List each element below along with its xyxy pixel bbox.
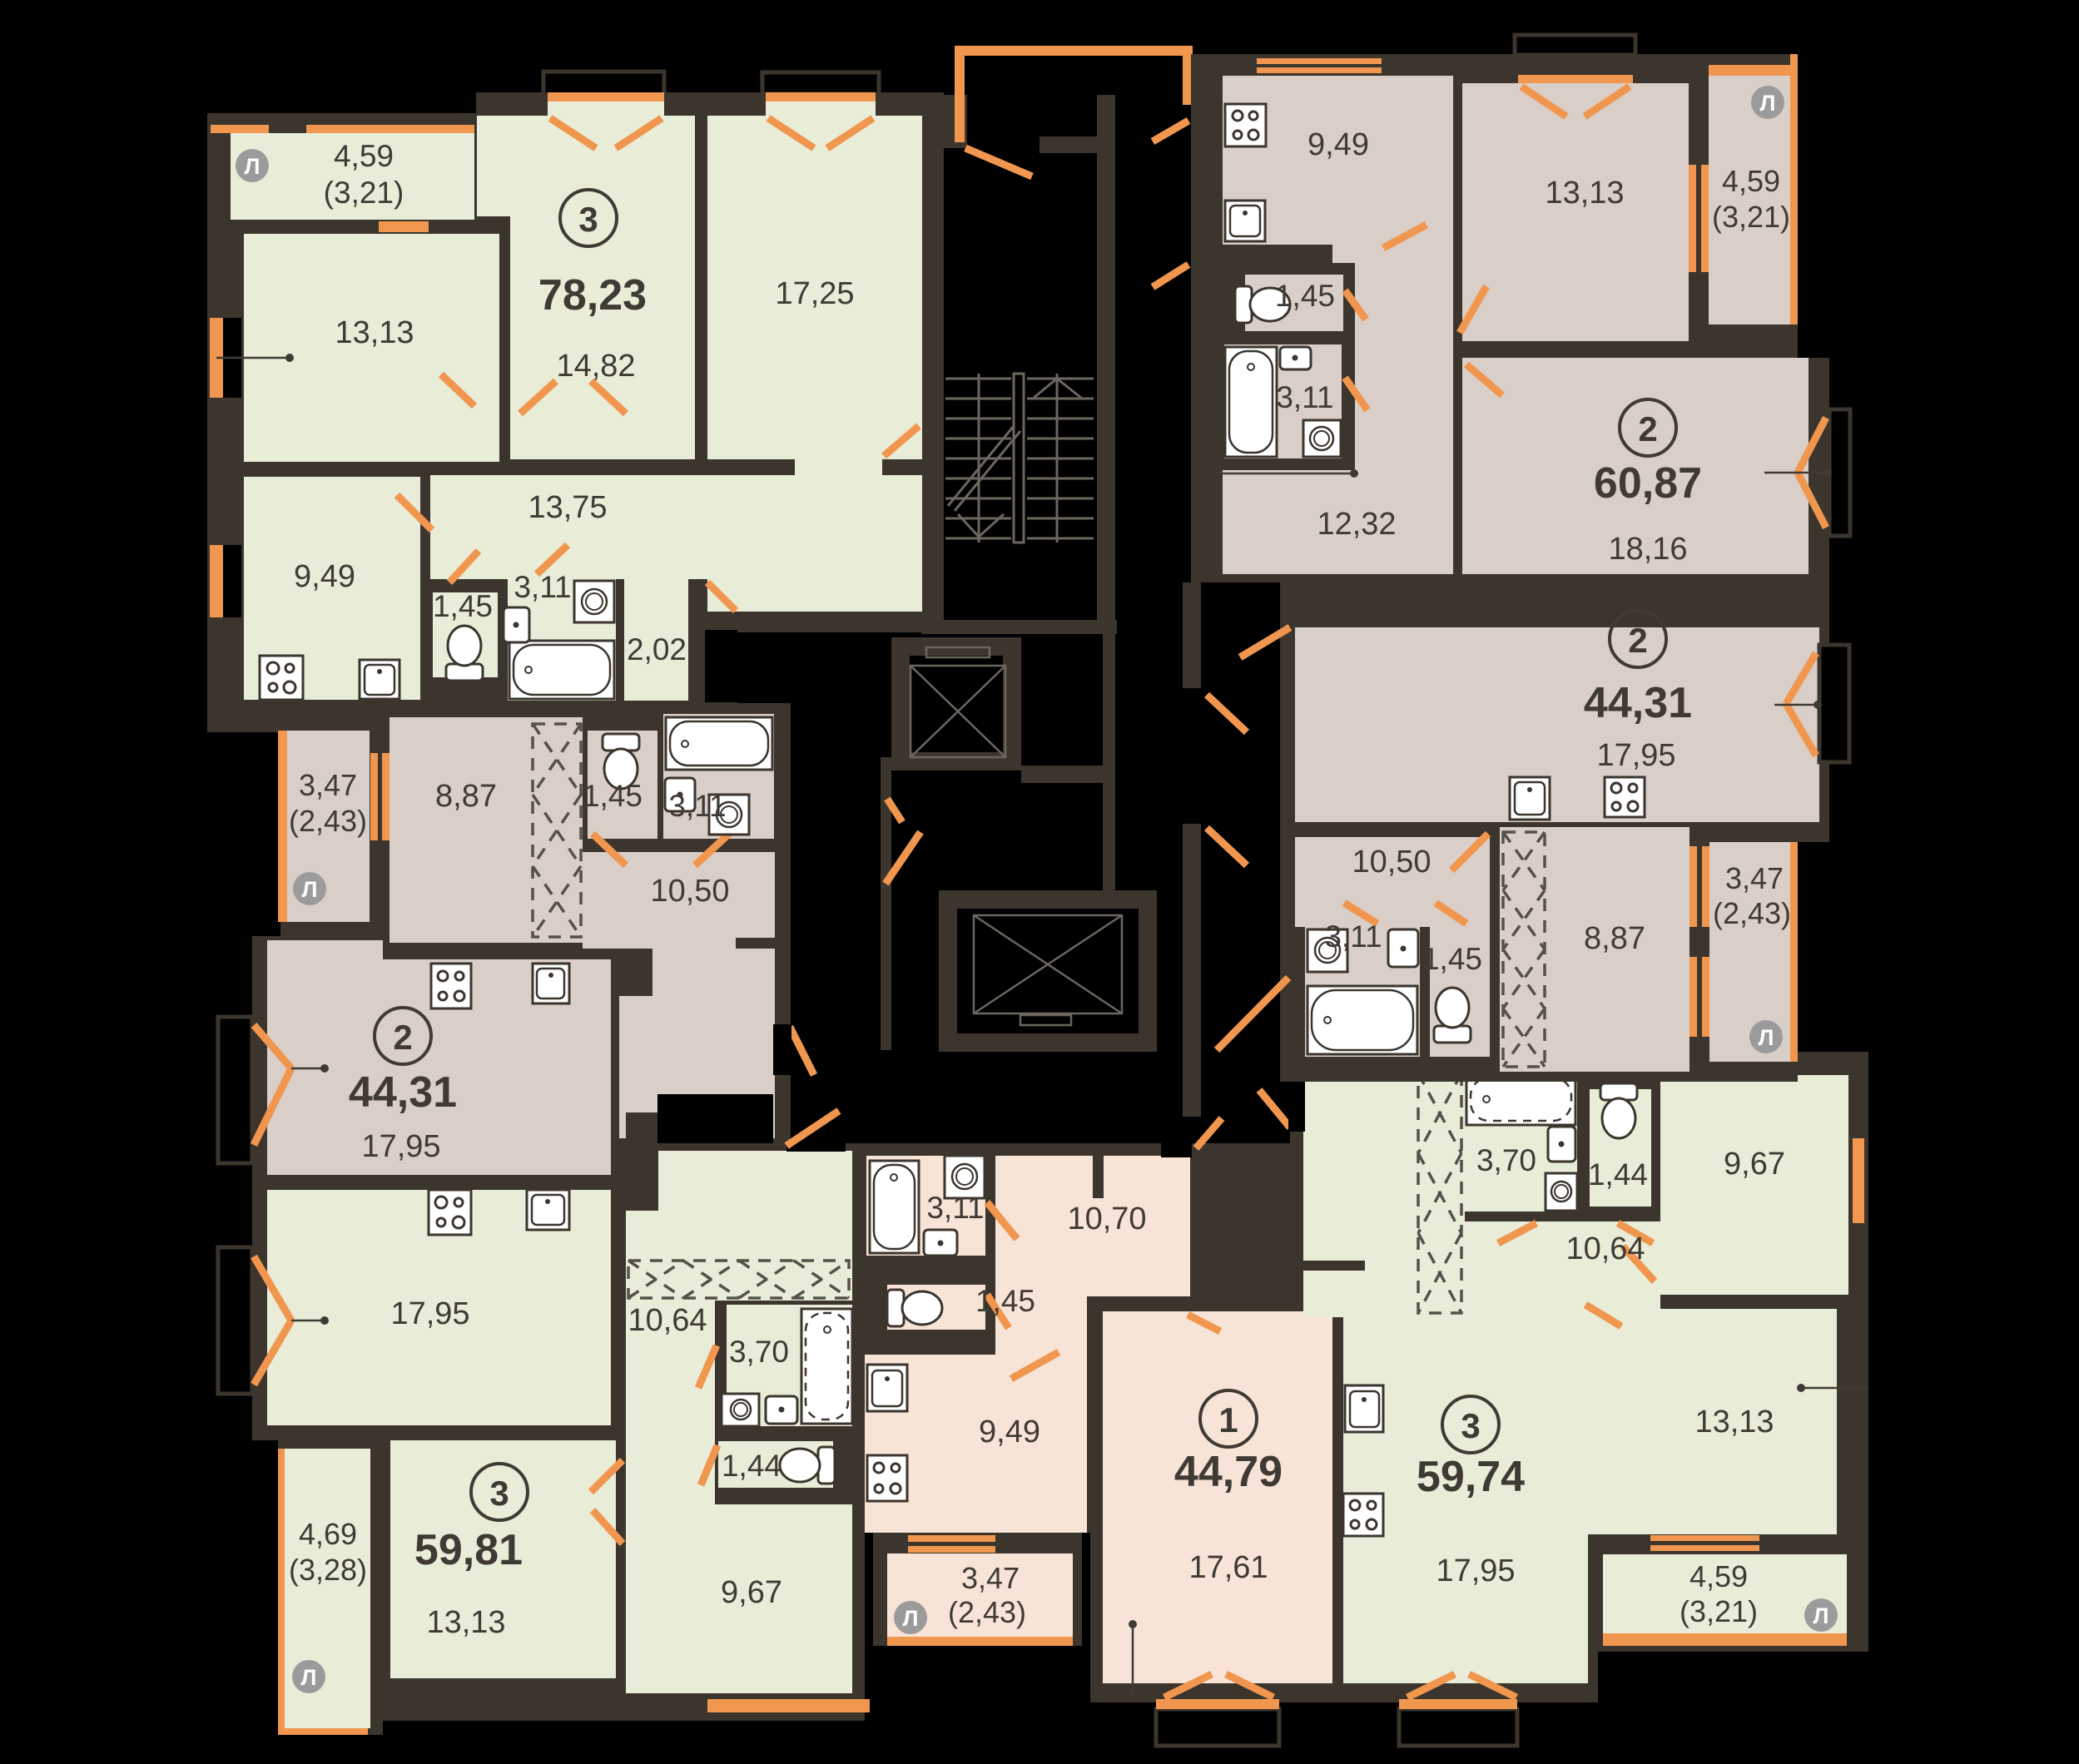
svg-text:59,81: 59,81	[414, 1526, 523, 1574]
svg-text:4,59: 4,59	[334, 139, 394, 173]
svg-text:1,45: 1,45	[1275, 279, 1335, 313]
svg-text:3: 3	[1461, 1406, 1480, 1445]
svg-text:78,23: 78,23	[538, 271, 647, 320]
svg-text:3,47: 3,47	[299, 768, 357, 802]
svg-text:9,49: 9,49	[979, 1415, 1040, 1449]
svg-text:(3,28): (3,28)	[289, 1553, 367, 1587]
svg-text:3: 3	[489, 1474, 509, 1513]
svg-text:Л: Л	[1759, 1025, 1774, 1050]
svg-text:13,13: 13,13	[335, 315, 414, 350]
svg-text:1,45: 1,45	[1422, 942, 1482, 976]
svg-text:3,11: 3,11	[514, 570, 571, 604]
svg-text:Л: Л	[245, 154, 260, 179]
svg-text:8,87: 8,87	[435, 779, 497, 814]
svg-text:4,59: 4,59	[1689, 1559, 1748, 1593]
svg-text:3,11: 3,11	[1324, 919, 1382, 954]
svg-text:3,11: 3,11	[1276, 380, 1333, 414]
svg-text:9,49: 9,49	[1307, 127, 1369, 162]
svg-text:3,11: 3,11	[668, 789, 726, 823]
svg-text:44,31: 44,31	[349, 1068, 457, 1117]
svg-text:59,74: 59,74	[1417, 1453, 1525, 1501]
svg-text:13,13: 13,13	[426, 1605, 505, 1640]
svg-text:13,13: 13,13	[1694, 1405, 1774, 1439]
svg-text:9,67: 9,67	[721, 1575, 782, 1610]
svg-text:(3,21): (3,21)	[1712, 200, 1790, 234]
svg-text:14,82: 14,82	[556, 349, 635, 384]
svg-text:2: 2	[393, 1018, 412, 1057]
svg-text:1: 1	[1218, 1400, 1238, 1439]
svg-text:3,11: 3,11	[926, 1191, 984, 1225]
svg-text:10,50: 10,50	[1352, 845, 1431, 880]
svg-text:3: 3	[578, 200, 598, 239]
svg-text:4,69: 4,69	[299, 1517, 357, 1551]
svg-text:(2,43): (2,43)	[289, 804, 367, 838]
svg-text:60,87: 60,87	[1594, 459, 1702, 508]
svg-text:44,79: 44,79	[1174, 1448, 1283, 1496]
svg-text:2,02: 2,02	[627, 632, 687, 666]
svg-text:3,70: 3,70	[1476, 1143, 1536, 1177]
svg-text:17,95: 17,95	[1436, 1553, 1515, 1588]
svg-text:9,67: 9,67	[1724, 1147, 1785, 1182]
svg-text:2: 2	[1628, 621, 1647, 660]
svg-text:17,25: 17,25	[775, 276, 854, 311]
svg-text:18,16: 18,16	[1608, 532, 1687, 567]
svg-text:4,59: 4,59	[1722, 164, 1780, 198]
svg-text:17,95: 17,95	[361, 1129, 440, 1164]
svg-text:Л: Л	[903, 1606, 919, 1631]
svg-text:(3,21): (3,21)	[324, 176, 404, 210]
svg-text:1,45: 1,45	[433, 589, 493, 623]
svg-text:1,44: 1,44	[1588, 1157, 1648, 1192]
svg-text:44,31: 44,31	[1584, 679, 1692, 727]
svg-text:1,45: 1,45	[975, 1284, 1035, 1318]
svg-text:Л: Л	[1814, 1603, 1829, 1628]
svg-text:Л: Л	[302, 877, 318, 902]
svg-text:17,61: 17,61	[1188, 1550, 1268, 1585]
svg-text:9,49: 9,49	[294, 559, 355, 594]
svg-text:17,95: 17,95	[1596, 738, 1675, 773]
svg-text:1,44: 1,44	[722, 1449, 781, 1483]
svg-text:(2,43): (2,43)	[1713, 896, 1791, 930]
svg-text:3,47: 3,47	[1725, 861, 1784, 895]
svg-text:13,75: 13,75	[528, 490, 607, 525]
svg-text:10,70: 10,70	[1067, 1202, 1146, 1236]
svg-text:1,45: 1,45	[583, 779, 643, 813]
svg-text:2: 2	[1638, 409, 1657, 448]
svg-text:12,32: 12,32	[1317, 507, 1396, 542]
svg-text:(3,21): (3,21)	[1680, 1594, 1758, 1628]
svg-text:13,13: 13,13	[1545, 176, 1624, 211]
svg-text:10,64: 10,64	[628, 1303, 707, 1338]
svg-text:Л: Л	[301, 1665, 317, 1690]
svg-text:17,95: 17,95	[390, 1296, 469, 1331]
svg-text:(2,43): (2,43)	[948, 1595, 1026, 1629]
svg-text:10,50: 10,50	[650, 874, 729, 909]
svg-text:3,70: 3,70	[729, 1335, 789, 1369]
svg-text:Л: Л	[1760, 91, 1776, 116]
svg-text:8,87: 8,87	[1584, 921, 1645, 956]
svg-text:10,64: 10,64	[1565, 1231, 1645, 1266]
svg-text:3,47: 3,47	[961, 1561, 1020, 1595]
